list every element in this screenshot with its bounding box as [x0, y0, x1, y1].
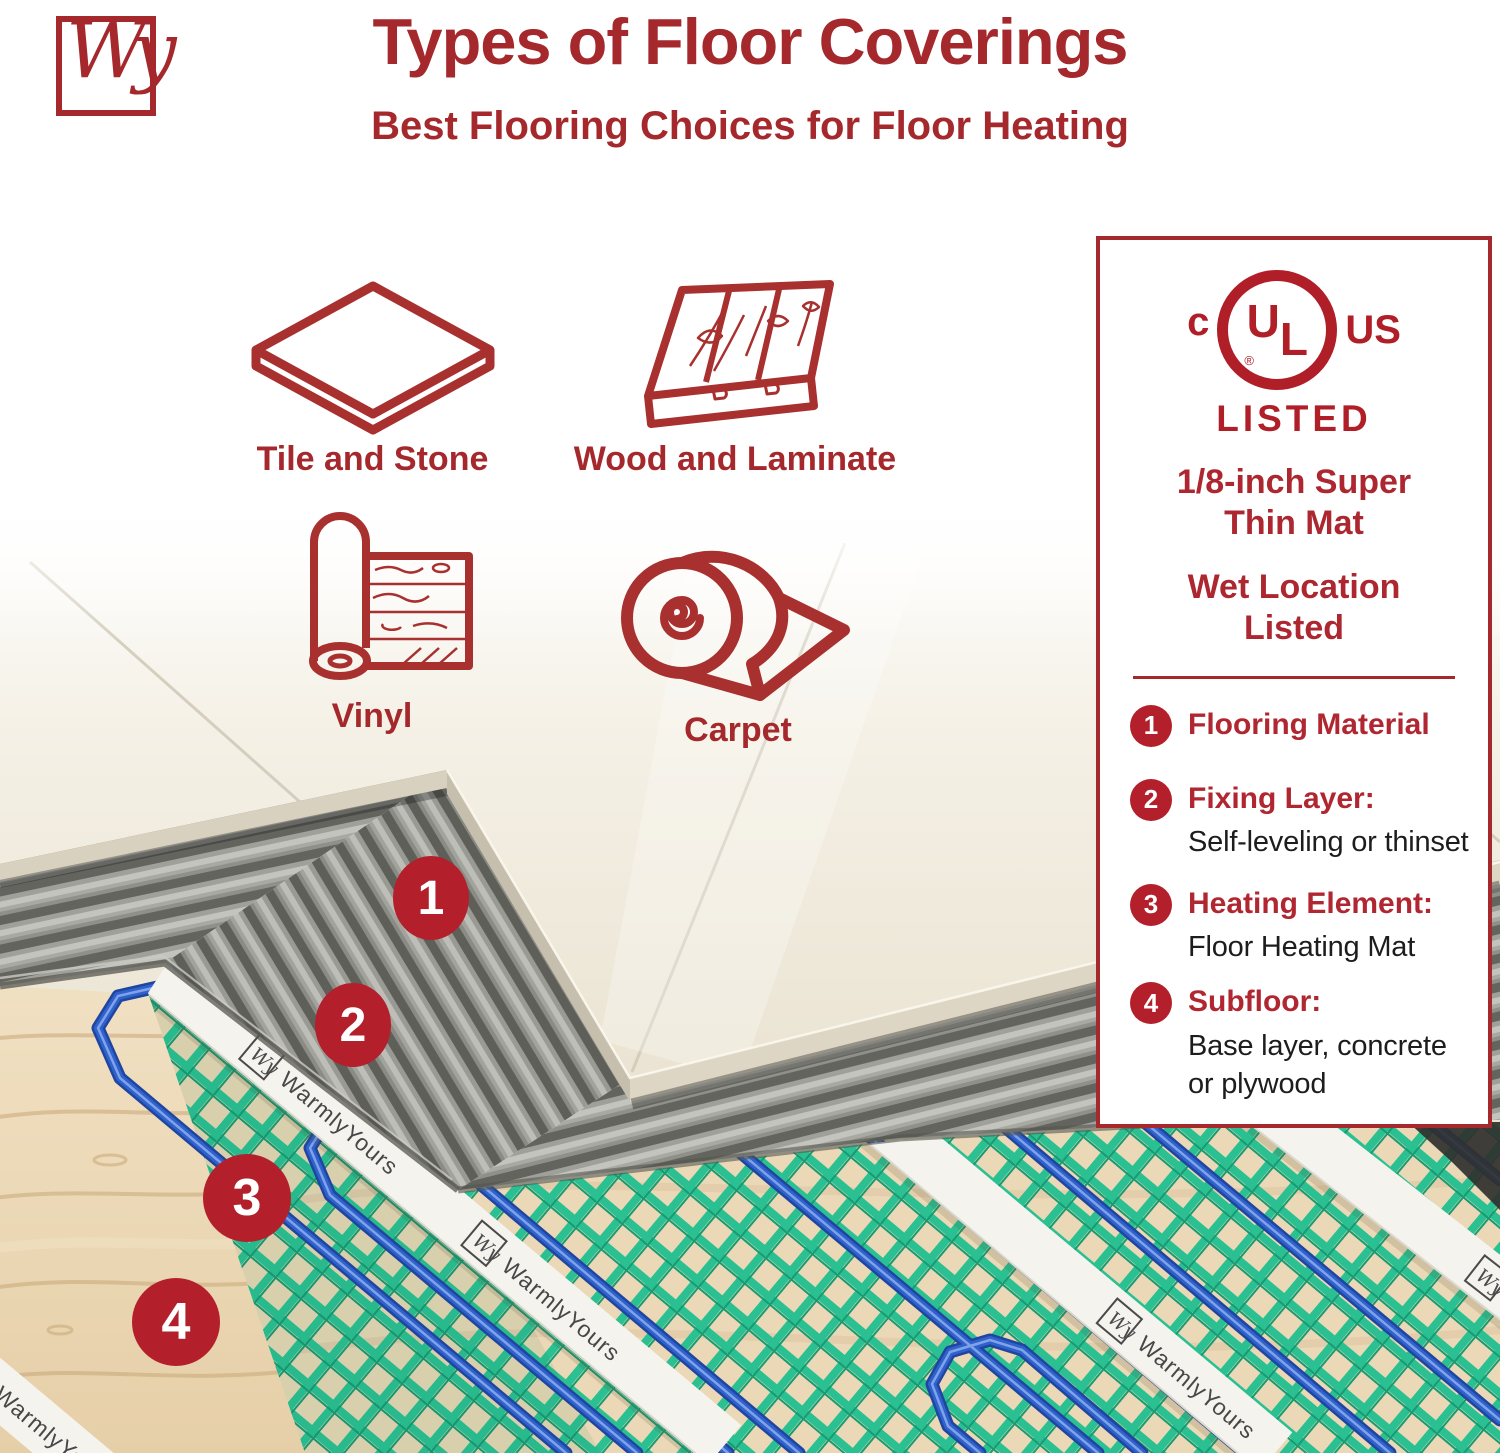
- info-panel: c U L ® US LISTED 1/8-inch Super Thin Ma…: [1096, 236, 1492, 1128]
- legend-desc: Self-leveling or thinset: [1188, 823, 1469, 861]
- legend-num-3: 3: [1130, 884, 1172, 926]
- tile-and-stone-label: Tile and Stone: [210, 440, 535, 479]
- tile-and-stone-icon: [248, 280, 498, 450]
- infographic-page: Wy WarmlyYours Wy WarmlyYours WarmlyYour…: [0, 0, 1500, 1453]
- legend-num-1: 1: [1130, 705, 1172, 747]
- legend-item-fixing: 2 Fixing Layer: Self-leveling or thinset: [1130, 779, 1488, 862]
- legend-title: Heating Element:: [1188, 887, 1433, 922]
- registered-symbol: ®: [1244, 353, 1254, 368]
- layer-badge-4: 4: [132, 1278, 220, 1366]
- legend-title: Subfloor:: [1188, 985, 1472, 1020]
- ul-letter-l: L: [1280, 312, 1308, 366]
- ul-us-text: US: [1345, 308, 1401, 353]
- carpet-label: Carpet: [628, 711, 848, 750]
- legend-title: Flooring Material: [1188, 708, 1430, 743]
- layer-badge-1: 1: [393, 856, 469, 940]
- ul-listed-text: LISTED: [1100, 398, 1488, 440]
- legend-desc: Base layer, concrete or plywood: [1188, 1027, 1472, 1104]
- page-subtitle: Best Flooring Choices for Floor Heating: [0, 104, 1500, 149]
- legend-num-4: 4: [1130, 982, 1172, 1024]
- layer-badge-2: 2: [315, 983, 391, 1067]
- ul-letter-u: U: [1247, 294, 1280, 348]
- layer-legend: 1 Flooring Material 2 Fixing Layer: Self…: [1130, 705, 1488, 1104]
- layer-badge-3: 3: [203, 1154, 291, 1242]
- legend-item-subfloor: 4 Subfloor: Base layer, concrete or plyw…: [1130, 982, 1488, 1103]
- ul-listed-mark: c U L ® US: [1100, 270, 1488, 390]
- legend-num-2: 2: [1130, 779, 1172, 821]
- panel-divider: [1133, 676, 1455, 679]
- legend-title: Fixing Layer:: [1188, 782, 1469, 817]
- panel-headline-1: 1/8-inch Super Thin Mat: [1144, 462, 1444, 545]
- ul-circle-icon: U L ®: [1217, 270, 1337, 390]
- legend-item-heating: 3 Heating Element: Floor Heating Mat: [1130, 884, 1488, 967]
- vinyl-label: Vinyl: [272, 697, 472, 736]
- legend-item-flooring: 1 Flooring Material: [1130, 705, 1488, 747]
- page-title: Types of Floor Coverings: [0, 4, 1500, 79]
- wood-and-laminate-icon: [618, 276, 853, 451]
- wood-and-laminate-label: Wood and Laminate: [545, 440, 925, 479]
- vinyl-roll-icon: [283, 498, 488, 693]
- legend-desc: Floor Heating Mat: [1188, 928, 1433, 966]
- panel-headline-2: Wet Location Listed: [1163, 567, 1425, 650]
- carpet-roll-icon: [612, 518, 857, 713]
- ul-c-text: c: [1187, 300, 1209, 345]
